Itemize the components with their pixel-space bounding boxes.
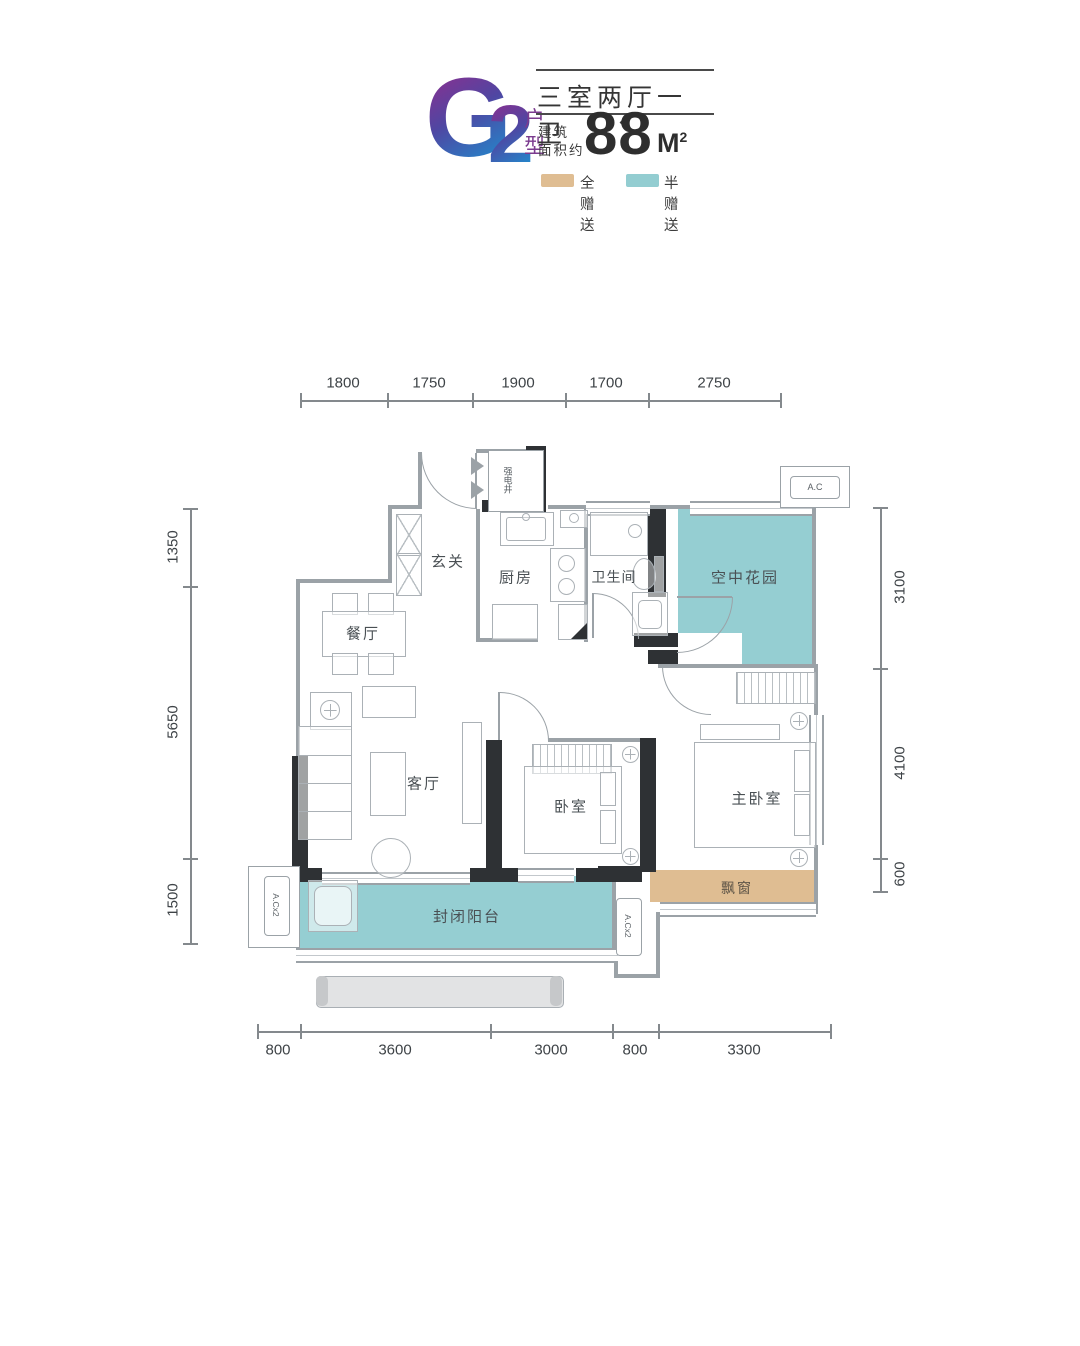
- dim-top-4: 1700: [589, 375, 622, 392]
- sofa: [298, 726, 352, 840]
- round-rug: [371, 838, 411, 878]
- dim-right-2: 4100: [892, 746, 909, 779]
- kitchen-corner-unit: [558, 604, 588, 640]
- dim-left-2: 5650: [165, 705, 182, 738]
- label-sky-garden: 空中花园: [711, 567, 779, 588]
- wall: [388, 505, 392, 583]
- dim-bottom-5: 3300: [727, 1042, 760, 1059]
- label-bedroom: 卧室: [554, 796, 588, 817]
- wall: [296, 579, 390, 583]
- bed-pillow: [794, 794, 810, 836]
- shower-drain: [628, 524, 642, 538]
- wall: [476, 509, 480, 642]
- window: [518, 868, 574, 883]
- planter-bar: [316, 976, 564, 1008]
- label-entry: 玄关: [431, 551, 465, 572]
- master-bench: [700, 724, 780, 740]
- bath-basin: [638, 600, 662, 629]
- ac-label: A.C: [807, 482, 822, 492]
- ac2-left-label: A.Cx2: [271, 893, 281, 916]
- wall-black: [640, 738, 656, 872]
- dim-tick: [387, 393, 389, 408]
- label-master-bedroom: 主卧室: [731, 788, 782, 809]
- wall: [812, 505, 816, 668]
- dim-top-5: 2750: [697, 375, 730, 392]
- label-bay-window: 飘窗: [721, 878, 753, 898]
- dim-top-1: 1800: [326, 375, 359, 392]
- dim-tick: [873, 891, 888, 893]
- shaft-label: 强电井: [502, 467, 515, 494]
- dim-line-right: [880, 507, 882, 891]
- wall: [614, 974, 660, 978]
- plant-icon: [622, 746, 639, 763]
- label-kitchen: 厨房: [499, 567, 533, 588]
- shaft-box: [488, 450, 544, 512]
- bed-pillow: [600, 810, 616, 844]
- dim-bottom-3: 3000: [534, 1042, 567, 1059]
- dim-tick: [490, 1024, 492, 1039]
- label-living: 客厅: [407, 773, 441, 794]
- dim-bottom-2: 3600: [378, 1042, 411, 1059]
- dim-bottom-1: 800: [265, 1042, 290, 1059]
- plant-icon: [320, 700, 340, 720]
- dim-tick: [873, 858, 888, 860]
- dim-line-left: [190, 508, 192, 943]
- dim-top-2: 1750: [412, 375, 445, 392]
- wall-black: [486, 740, 502, 872]
- entry-closet: [396, 553, 422, 596]
- kitchen-faucet: [522, 513, 530, 521]
- floor-plan: 强电井 A.C A.Cx2 A.Cx2: [0, 0, 1080, 1346]
- dim-top-3: 1900: [501, 375, 534, 392]
- entry-closet: [396, 514, 422, 556]
- dim-tick: [300, 393, 302, 408]
- master-door-arc: [662, 666, 711, 715]
- washing-machine-drum: [314, 886, 352, 926]
- ac2-bottom-label: A.Cx2: [623, 914, 633, 937]
- kitchen-cabinet: [492, 604, 538, 640]
- wall: [656, 912, 660, 978]
- label-balcony: 封闭阳台: [433, 906, 501, 927]
- wall: [548, 738, 650, 742]
- plant-icon: [790, 849, 808, 867]
- dim-tick: [183, 943, 198, 945]
- dim-tick: [612, 1024, 614, 1039]
- dim-bottom-4: 800: [622, 1042, 647, 1059]
- wall-black: [648, 650, 678, 664]
- bedroom-door-arc: [500, 692, 549, 741]
- dim-line-top: [300, 400, 780, 402]
- label-bathroom: 卫生间: [592, 567, 637, 587]
- window-sill: [660, 902, 816, 917]
- plant-icon: [622, 848, 639, 865]
- dim-tick: [183, 586, 198, 588]
- dim-tick: [873, 507, 888, 509]
- dim-tick: [257, 1024, 259, 1039]
- garden-door-arc: [677, 597, 733, 653]
- sky-garden-zone-ext: [742, 633, 812, 664]
- dim-tick: [780, 393, 782, 408]
- dim-line-bottom: [257, 1031, 830, 1033]
- dining-chair: [368, 653, 394, 675]
- dim-tick: [830, 1024, 832, 1039]
- window: [296, 948, 618, 963]
- dim-tick: [873, 668, 888, 670]
- bed-pillow: [600, 772, 616, 806]
- dim-tick: [183, 508, 198, 510]
- kitchen-meter-dial: [569, 513, 579, 523]
- wall-black: [598, 866, 642, 880]
- tv-console: [462, 722, 482, 824]
- master-wardrobe: [736, 672, 816, 704]
- corner-unit-mark: [571, 623, 587, 639]
- stove-burner: [558, 578, 575, 595]
- dining-chair: [332, 653, 358, 675]
- dim-right-3: 600: [892, 861, 909, 886]
- dim-tick: [565, 393, 567, 408]
- dim-right-1: 3100: [892, 570, 909, 603]
- dim-tick: [472, 393, 474, 408]
- coffee-table: [370, 752, 406, 816]
- entry-door-arc: [421, 453, 477, 509]
- dim-tick: [658, 1024, 660, 1039]
- bed-pillow: [794, 750, 810, 792]
- planter-cap: [316, 976, 328, 1006]
- planter-cap: [550, 976, 562, 1006]
- dim-left-3: 1500: [165, 883, 182, 916]
- dim-left-1: 1350: [165, 530, 182, 563]
- dim-tick: [300, 1024, 302, 1039]
- label-dining: 餐厅: [346, 623, 380, 644]
- stove-burner: [558, 555, 575, 572]
- dim-tick: [648, 393, 650, 408]
- wall-black: [470, 868, 518, 882]
- plant-icon: [790, 712, 808, 730]
- living-cabinet: [362, 686, 416, 718]
- toilet-tank: [654, 556, 664, 592]
- dim-tick: [183, 858, 198, 860]
